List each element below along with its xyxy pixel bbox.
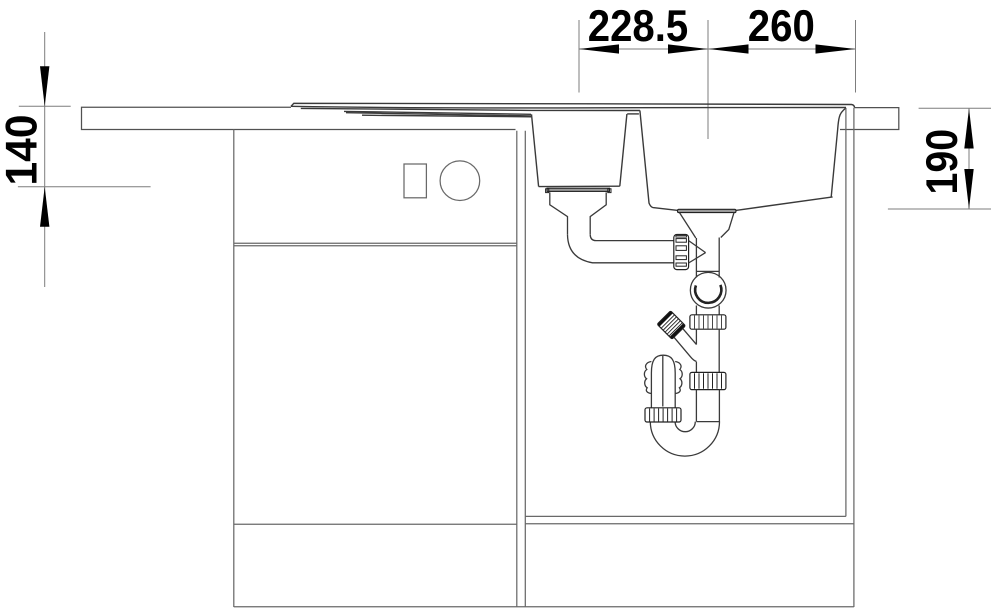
svg-text:190: 190	[918, 129, 967, 195]
svg-text:228.5: 228.5	[588, 2, 689, 51]
svg-text:260: 260	[748, 2, 815, 51]
svg-text:140: 140	[0, 115, 46, 186]
